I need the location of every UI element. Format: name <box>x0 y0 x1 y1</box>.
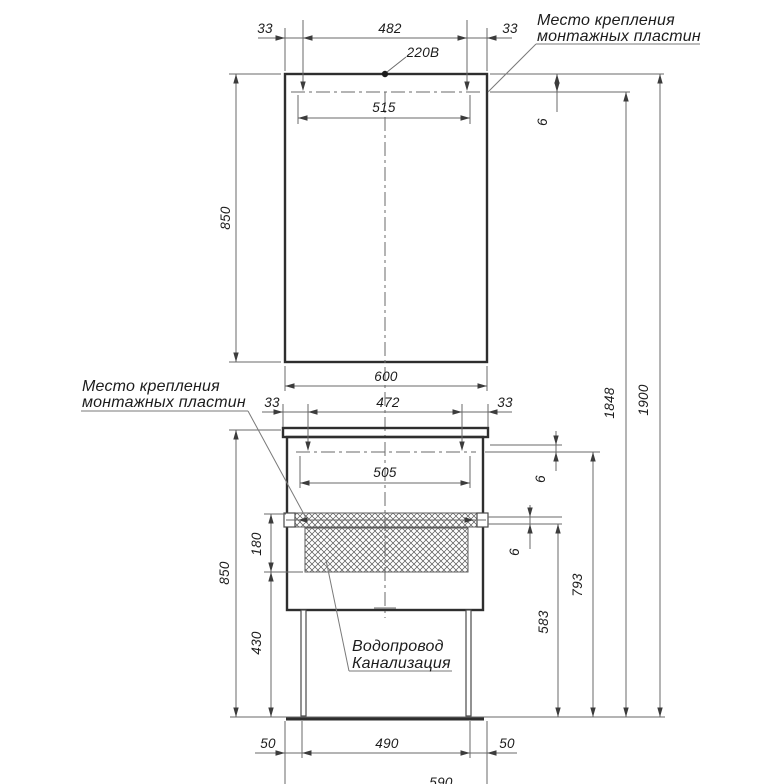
leg-right <box>466 610 471 716</box>
dim-mirror-margin-left: 33 <box>257 21 273 36</box>
dim-body-width: 590 <box>429 775 453 784</box>
vanity-cabinet-outline <box>230 428 665 719</box>
technical-drawing-page: 33 482 33 220В 515 850 600 6 <box>0 0 784 784</box>
dim-rail-height: 1848 <box>602 387 617 418</box>
dim-mirror-height: 850 <box>218 206 233 230</box>
dim-leg-right: 50 <box>499 736 515 751</box>
dim-mirror-rail-length: 515 <box>372 100 396 115</box>
dim-cab-plate-span: 472 <box>376 395 400 410</box>
dim-total-height: 1900 <box>636 384 651 415</box>
dim-overall-width: 600 <box>374 369 398 384</box>
dim-plate-floor: 583 <box>536 610 551 634</box>
dim-cab-margin-right: 33 <box>497 395 513 410</box>
dim-mirror-rail-offset: 6 <box>535 118 550 126</box>
plumbing-zone-hatch <box>305 528 468 572</box>
note-mounting-top-line2: монтажных пластин <box>537 28 701 45</box>
dim-cab-rail-length: 505 <box>373 465 397 480</box>
note-plumbing-line1: Водопровод <box>352 638 444 655</box>
dim-leg-left: 50 <box>260 736 276 751</box>
dim-zone-floor: 430 <box>249 631 264 655</box>
power-label: 220В <box>406 45 440 60</box>
dim-service-zone: 180 <box>249 532 264 556</box>
leg-left <box>301 610 306 716</box>
note-plumbing-line2: Канализация <box>352 655 451 672</box>
dim-mirror-margin-right: 33 <box>502 21 518 36</box>
dim-cab-margin-left: 33 <box>264 395 280 410</box>
dim-plate-thickness: 6 <box>507 548 522 556</box>
note-mounting-left-line1: Место крепления <box>82 378 220 395</box>
note-mounting-top-line1: Место крепления <box>537 12 675 29</box>
dim-mirror-plate-span: 482 <box>378 21 402 36</box>
dim-cab-rail-offset: 6 <box>533 475 548 483</box>
dim-rail-floor: 793 <box>570 573 585 597</box>
dim-cab-height: 850 <box>217 561 232 585</box>
note-mounting-left-line2: монтажных пластин <box>82 394 246 411</box>
dim-leg-span: 490 <box>375 736 399 751</box>
furniture-installation-drawing: 33 482 33 220В 515 850 600 6 <box>0 0 784 784</box>
